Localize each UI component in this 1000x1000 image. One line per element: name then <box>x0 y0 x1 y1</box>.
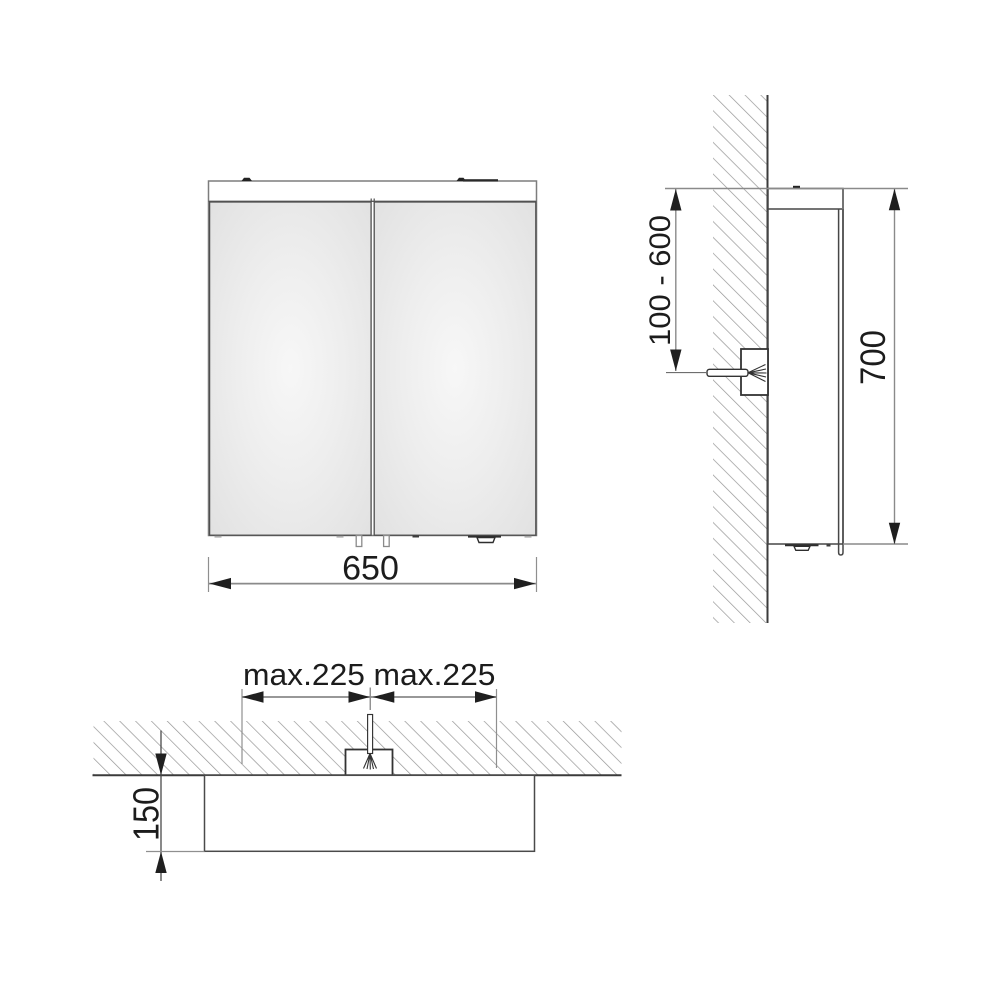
svg-text:150: 150 <box>126 787 167 841</box>
svg-text:100 - 600: 100 - 600 <box>644 215 677 346</box>
svg-text:650: 650 <box>342 550 399 588</box>
svg-text:max.225: max.225 <box>243 657 365 692</box>
svg-text:max.225: max.225 <box>374 657 496 692</box>
svg-text:700: 700 <box>854 330 893 385</box>
